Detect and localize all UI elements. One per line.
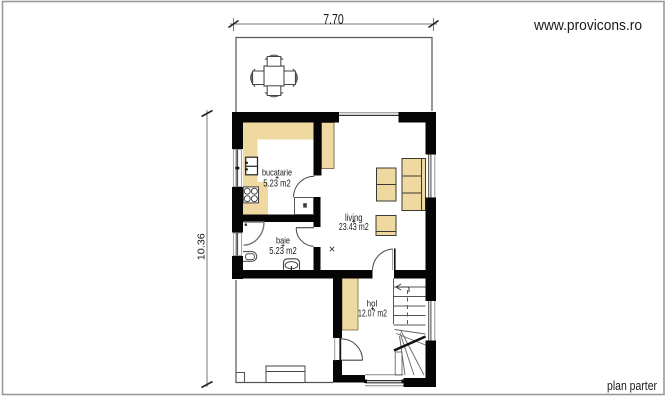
svg-text:bucatarie: bucatarie	[262, 168, 292, 178]
svg-text:10.36: 10.36	[196, 233, 207, 260]
svg-text:www.provicons.ro: www.provicons.ro	[533, 17, 642, 34]
svg-text:5.23 m2: 5.23 m2	[263, 178, 291, 189]
svg-text:5.23 m2: 5.23 m2	[269, 246, 297, 257]
svg-text:23.43 m2: 23.43 m2	[339, 222, 369, 233]
svg-text:plan parter: plan parter	[607, 379, 657, 393]
svg-text:7.70: 7.70	[323, 11, 344, 28]
svg-text:baie: baie	[276, 236, 290, 246]
svg-text:12.07 m2: 12.07 m2	[358, 309, 387, 320]
